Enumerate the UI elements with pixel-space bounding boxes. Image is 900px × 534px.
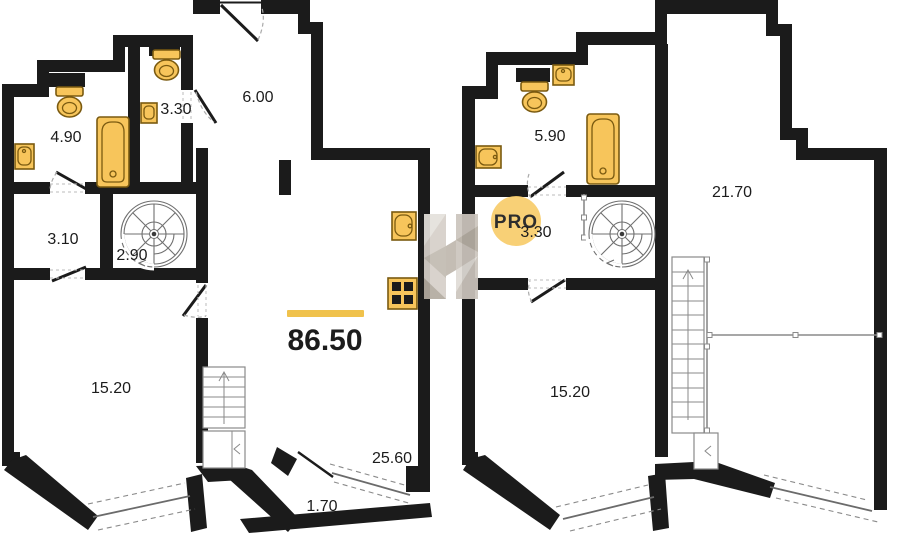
bathtub-icon xyxy=(587,114,619,184)
room-label-bathroom-l1: 4.90 xyxy=(50,129,81,146)
staircase-icon xyxy=(672,257,718,469)
total-area-label: 86.50 xyxy=(287,324,362,357)
room-label-balcony-l1: 1.70 xyxy=(306,498,337,515)
total-area-underline xyxy=(287,310,364,317)
level2-bay-walls xyxy=(463,455,775,531)
toilet-icon xyxy=(56,87,83,117)
railing xyxy=(582,194,587,240)
kitchen-sink-icon xyxy=(392,212,416,240)
sink-icon xyxy=(476,146,501,168)
room-label-stairwell-l1: 2.90 xyxy=(116,247,147,264)
room-label-bedroom-l2: 15.20 xyxy=(550,384,590,401)
room-label-corridor-l1: 3.10 xyxy=(47,231,78,248)
room-label-hallway-l2: 3.30 xyxy=(520,224,551,241)
room-label-wc-l1: 3.30 xyxy=(160,101,191,118)
balcony-door-leaf xyxy=(298,452,333,477)
stove-icon xyxy=(388,278,417,309)
sink-icon xyxy=(141,103,157,123)
floor-plan-image: PRO 4.90 3.30 6.00 3.10 2.90 15.20 25.60… xyxy=(0,0,900,534)
level2-floor-plan xyxy=(462,0,887,531)
spiral-staircase-icon xyxy=(589,201,655,267)
level1-floor-plan xyxy=(2,0,432,533)
toilet-icon xyxy=(521,82,548,112)
brand-h-icon xyxy=(424,214,478,299)
room-label-terrace-l1: 25.60 xyxy=(372,450,412,467)
sink-icon xyxy=(15,144,34,169)
entrance-door-swing xyxy=(258,8,263,40)
room-label-bedroom-l1: 15.20 xyxy=(91,380,131,397)
toilet-icon xyxy=(153,50,180,80)
entrance-door-leaf xyxy=(221,5,258,41)
room-label-living-l2: 21.70 xyxy=(712,184,752,201)
sink-icon xyxy=(553,65,574,85)
staircase-icon xyxy=(203,367,245,468)
room-label-entry-l1: 6.00 xyxy=(242,89,273,106)
room-label-bathroom-l2: 5.90 xyxy=(534,128,565,145)
bathtub-icon xyxy=(97,117,129,187)
railing xyxy=(707,333,882,338)
